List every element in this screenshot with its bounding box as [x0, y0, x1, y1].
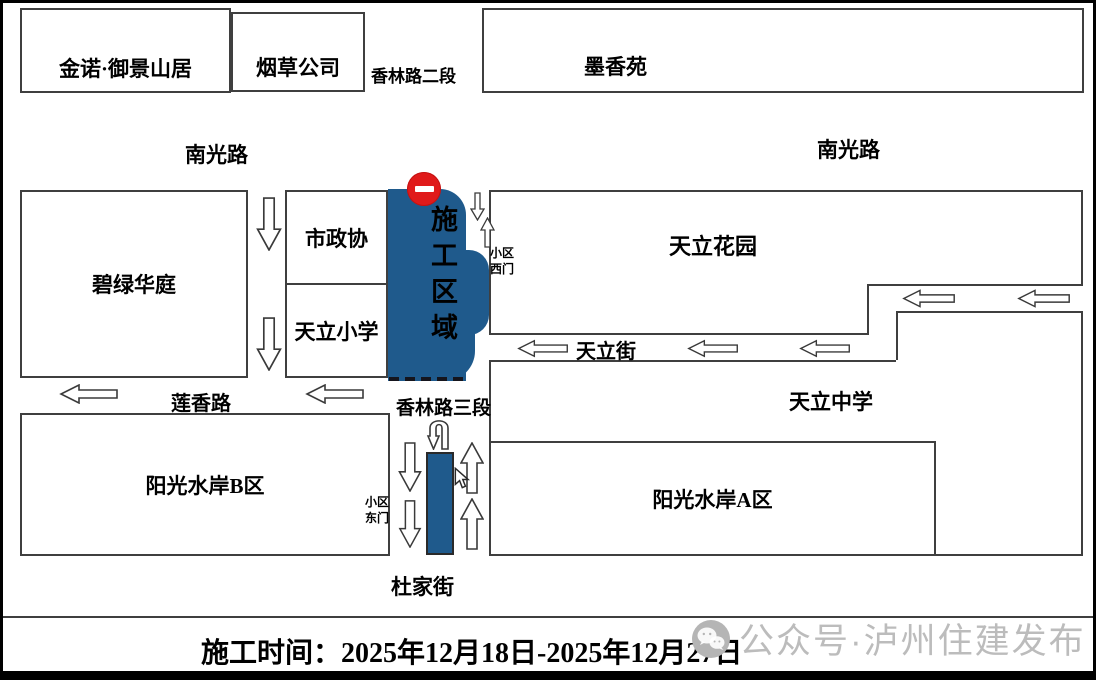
building-tianli-huayuan-label: 天立花园 — [669, 229, 757, 261]
arrow-left-icon — [517, 339, 569, 358]
wechat-icon — [691, 619, 731, 659]
building-yangguang-a-label: 阳光水岸A区 — [652, 484, 772, 514]
gate-east-line1: 小区 — [365, 495, 389, 509]
mouse-cursor-icon — [452, 467, 472, 491]
building-tianli-huayuan-lower — [489, 284, 869, 335]
arrow-left-icon — [304, 384, 366, 404]
building-bilvhuating: 碧绿华庭 — [20, 190, 248, 378]
arrow-down-icon — [398, 500, 422, 548]
building-jinnuo-label: 金诺·御景山居 — [59, 53, 192, 83]
road-step-wall — [896, 311, 898, 360]
building-tianli-zhongxue-label: 天立中学 — [789, 386, 873, 416]
watermark: 公众号·泸州住建发布 — [691, 613, 1086, 664]
arrow-left-icon — [902, 289, 956, 308]
road-dujia-label: 杜家街 — [391, 571, 454, 601]
u-turn-arrow-icon — [423, 416, 455, 450]
arrow-left-icon — [687, 339, 739, 358]
arrow-left-icon — [58, 384, 120, 404]
building-bilvhuating-label: 碧绿华庭 — [92, 269, 176, 299]
building-shizhengxie-label: 市政协 — [305, 223, 368, 253]
closed-road-bar — [426, 452, 454, 555]
building-shizhengxie: 市政协 — [285, 190, 388, 285]
construction-zone-label: 施工区域 — [423, 205, 462, 375]
building-yangguang-b: 阳光水岸B区 — [20, 413, 390, 556]
building-yangguang-a: 阳光水岸A区 — [489, 441, 936, 556]
building-yancao-label: 烟草公司 — [256, 52, 340, 82]
gate-west-line1: 小区 — [490, 246, 514, 260]
no-entry-sign-icon — [407, 172, 441, 206]
arrow-small-up-icon — [480, 217, 495, 248]
road-nanguang-right-label: 南光路 — [817, 134, 880, 164]
building-moxiangyuan: 墨香苑 — [482, 8, 1084, 93]
construction-time-caption: 施工时间：2025年12月18日-2025年12月27日 — [201, 631, 742, 671]
gate-west-line2: 西门 — [490, 262, 514, 276]
road-nanguang-left-label: 南光路 — [185, 139, 248, 169]
building-tianli-xiaoxue-label: 天立小学 — [295, 316, 379, 346]
building-tianli-xiaoxue: 天立小学 — [285, 283, 388, 378]
arrow-left-icon — [799, 339, 851, 358]
gate-west-label: 小区 西门 — [490, 245, 514, 277]
road-xianglin2-label: 香林路二段 — [371, 62, 456, 87]
gate-east-line2: 东门 — [365, 511, 389, 525]
construction-zone-dashed-edge — [389, 377, 465, 381]
bottom-black-bar — [3, 671, 1093, 680]
building-yancao: 烟草公司 — [231, 12, 365, 92]
road-edge-upper — [869, 284, 1083, 286]
arrow-up-icon — [460, 498, 484, 550]
building-moxiangyuan-label: 墨香苑 — [584, 51, 647, 81]
construction-detour-map: 金诺·御景山居 烟草公司 墨香苑 碧绿华庭 市政协 天立小学 天立花园 天立中学… — [0, 0, 1096, 680]
building-yangguang-b-label: 阳光水岸B区 — [145, 470, 264, 500]
arrow-down-icon — [255, 197, 283, 251]
arrow-down-icon — [398, 442, 422, 492]
watermark-text: 公众号·泸州住建发布 — [739, 613, 1086, 664]
road-tianli-street-label: 天立街 — [576, 335, 636, 364]
arrow-left-icon — [1017, 289, 1071, 308]
building-tianli-huayuan — [489, 190, 1083, 286]
building-jinnuo: 金诺·御景山居 — [20, 8, 231, 93]
arrow-down-icon — [255, 317, 283, 371]
gate-east-label: 小区 东门 — [365, 494, 389, 526]
road-lianxiang-label: 莲香路 — [171, 387, 231, 416]
